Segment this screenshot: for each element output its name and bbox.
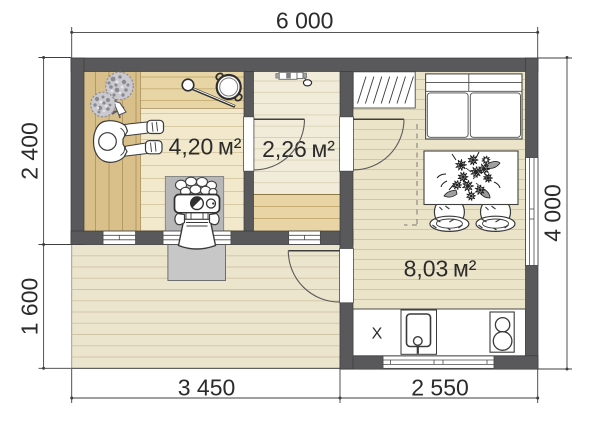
svg-text:8,03 м²: 8,03 м² bbox=[404, 256, 477, 282]
svg-text:1 600: 1 600 bbox=[17, 278, 43, 336]
svg-text:2 400: 2 400 bbox=[17, 122, 43, 180]
svg-text:4,20 м²: 4,20 м² bbox=[169, 134, 242, 160]
svg-text:6 000: 6 000 bbox=[276, 8, 334, 34]
svg-text:4 000: 4 000 bbox=[540, 184, 566, 242]
svg-text:2,26 м²: 2,26 м² bbox=[262, 136, 335, 162]
svg-text:2 550: 2 550 bbox=[411, 375, 469, 401]
svg-text:3 450: 3 450 bbox=[178, 375, 236, 401]
svg-text:X: X bbox=[372, 326, 383, 343]
